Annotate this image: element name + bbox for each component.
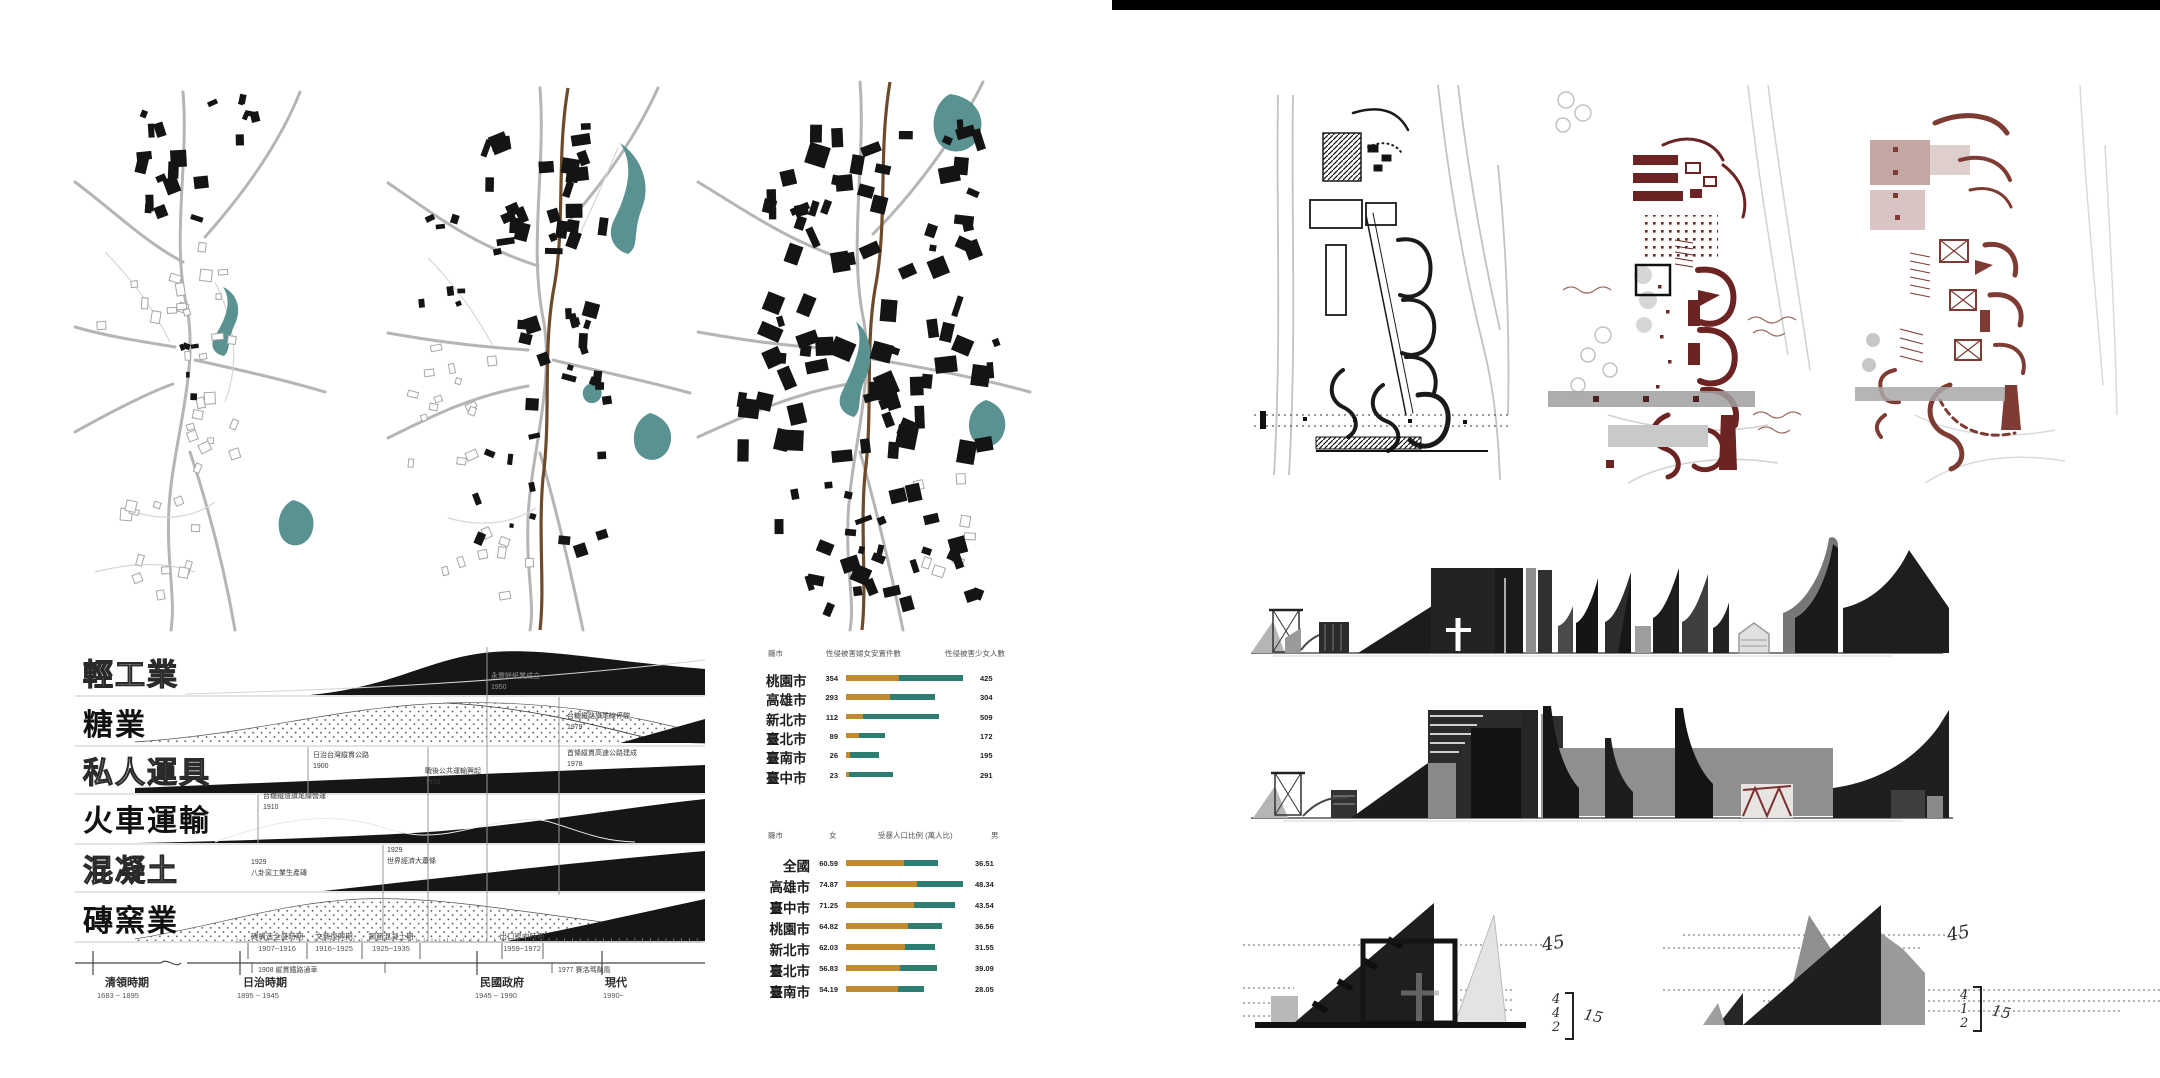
building-footprint — [136, 151, 152, 161]
planC-stairs — [1900, 253, 1930, 362]
timeline-annotation-1-line2: 1979 — [567, 724, 583, 731]
building-outline — [97, 321, 106, 329]
building-footprint — [876, 544, 884, 555]
building-outline — [960, 515, 971, 527]
building-outline — [198, 242, 206, 252]
building-footprint — [545, 248, 563, 254]
building-footprint — [784, 243, 804, 266]
building-footprint — [148, 123, 155, 137]
stacked-bar — [846, 694, 935, 700]
planA-context-roads — [1274, 85, 1509, 480]
building-footprint — [581, 123, 591, 130]
table-header-3: 男 — [991, 830, 999, 841]
table-header-2: 受暴人口比例 (萬人比) — [878, 830, 953, 841]
band-concrete-wedge — [323, 851, 705, 891]
planC-trees — [1862, 333, 1880, 372]
building-footprint — [822, 602, 835, 617]
building-footprint — [966, 187, 980, 198]
bar-segment-gold — [846, 694, 890, 700]
building-outline — [153, 501, 161, 509]
building-outline — [125, 500, 137, 513]
value-series-2: 39.09 — [975, 964, 994, 973]
building-outline — [183, 309, 191, 317]
elev1-chapel-box — [1431, 568, 1552, 653]
city-map-stage-1 — [75, 92, 325, 630]
building-outline — [525, 558, 533, 567]
building-footprint — [602, 395, 612, 404]
building-footprint — [939, 322, 955, 343]
elev1-shed-roofs — [1558, 568, 1729, 653]
building-outline — [229, 448, 241, 460]
building-outline — [169, 273, 182, 283]
building-footprint — [914, 406, 924, 429]
building-footprint — [870, 194, 889, 214]
planA-ink-lines — [1310, 109, 1448, 451]
building-footprint — [250, 111, 261, 123]
value-series-2: 291 — [980, 771, 993, 780]
axis-period-name-1: 日治時期 — [243, 975, 287, 989]
building-outline — [131, 281, 138, 288]
building-outline — [434, 395, 443, 403]
bar-segment-gold — [846, 923, 908, 929]
building-outline — [465, 449, 479, 461]
building-footprint — [779, 169, 797, 187]
building-footprint — [899, 595, 915, 612]
map2-buildings — [407, 123, 612, 600]
axis-period-range-1: 1895 ~ 1945 — [237, 991, 279, 1000]
building-footprint — [831, 449, 853, 463]
building-footprint — [777, 366, 798, 391]
top-black-bar — [1112, 0, 2160, 10]
building-footprint — [238, 94, 246, 105]
bar-segment-teal — [900, 965, 937, 971]
building-outline — [230, 419, 239, 430]
axis-event-1: 1977 賽洛瑪颱風 — [558, 965, 611, 974]
sketchR-annotations: 4541215 — [1944, 921, 2012, 1031]
axis-period-name-0: 清領時期 — [105, 975, 149, 989]
sketchR-dim-0: 4 — [1959, 988, 1968, 1003]
building-outline — [956, 474, 965, 485]
building-footprint — [883, 585, 901, 598]
axis-period-range-0: 1683 ~ 1895 — [97, 991, 139, 1000]
building-outline — [407, 390, 418, 398]
building-footprint — [831, 128, 843, 148]
building-footprint — [566, 204, 583, 218]
building-outline — [408, 459, 414, 468]
elev1-entry-ramp — [1301, 622, 1349, 653]
building-footprint — [921, 546, 932, 555]
building-footprint — [592, 370, 602, 386]
sketchL-dim-2: 2 — [1551, 1020, 1560, 1035]
building-footprint — [951, 295, 963, 317]
building-footprint — [929, 244, 937, 251]
elev1-tall-curves — [1783, 537, 1949, 653]
value-series-2: 195 — [980, 751, 993, 760]
building-outline — [175, 283, 185, 297]
building-footprint — [455, 300, 462, 307]
building-outline — [192, 410, 203, 420]
industry-timeline-chart: 輕工業糖業私人運具火車運輸混凝土磚窯業永豐餘紙業成立1950台糖鐵路旗尾線停駛1… — [75, 645, 705, 1015]
stacked-bar — [846, 881, 963, 887]
axis-period-range-3: 1990~ — [603, 991, 625, 1000]
city-map-stage-3 — [698, 82, 1030, 630]
building-footprint — [572, 166, 589, 181]
building-footprint — [975, 436, 994, 453]
value-series-1: 64.82 — [798, 922, 838, 931]
sketchL-light-triangle — [1455, 915, 1506, 1023]
building-footprint — [926, 319, 939, 339]
building-footprint — [598, 217, 609, 236]
building-outline — [200, 269, 213, 282]
axis-subperiod-range-3: 1959~1972 — [503, 944, 541, 953]
timeline-bands — [135, 651, 705, 941]
building-footprint — [582, 301, 601, 319]
sketchL-scale-note: 15 — [1582, 1005, 1604, 1027]
building-footprint — [810, 125, 822, 143]
building-footprint — [450, 214, 460, 225]
axis-subperiod-range-1: 1916~1925 — [315, 944, 353, 953]
value-series-2: 36.51 — [975, 859, 994, 868]
table-row: 臺中市71.2543.54 — [758, 897, 1030, 915]
value-series-2: 172 — [980, 732, 993, 741]
building-outline — [448, 363, 455, 373]
timeline-row-label-3: 火車運輸 — [83, 804, 211, 838]
elev2-ramp-wedge — [1351, 763, 1428, 818]
building-footprint — [808, 200, 819, 217]
building-outline — [487, 356, 497, 366]
building-outline — [211, 333, 223, 340]
building-footprint — [849, 154, 865, 175]
building-footprint — [881, 411, 895, 428]
building-footprint — [436, 224, 446, 230]
building-footprint — [781, 430, 804, 451]
table-row: 臺南市54.1928.05 — [758, 981, 1030, 999]
axis-subperiod-range-0: 1907~1916 — [258, 944, 296, 953]
building-footprint — [517, 320, 533, 330]
building-outline — [499, 536, 510, 546]
table-row: 桃園市354425 — [758, 670, 1030, 688]
building-outline — [216, 294, 221, 300]
building-footprint — [794, 203, 809, 217]
scaffold-tower-icon — [1253, 773, 1357, 818]
building-footprint — [895, 424, 919, 450]
axis-period-name-3: 現代 — [605, 975, 627, 989]
building-footprint — [558, 535, 570, 545]
elevation-study-1 — [1243, 518, 1955, 663]
bar-segment-gold — [846, 881, 917, 887]
building-footprint — [561, 373, 577, 383]
site-plan-sketch-ink — [1248, 85, 1520, 480]
building-footprint — [880, 299, 898, 322]
building-outline — [156, 590, 165, 600]
value-series-1: 89 — [798, 732, 838, 741]
table-row: 臺中市23291 — [758, 767, 1030, 785]
table-header-0: 縣市 — [768, 648, 783, 659]
value-series-1: 23 — [798, 771, 838, 780]
building-footprint — [804, 142, 831, 169]
map1-buildings — [97, 94, 261, 600]
building-footprint — [472, 492, 482, 505]
building-footprint — [186, 372, 190, 378]
scaffold-tower-icon — [1251, 610, 1303, 653]
building-footprint — [816, 539, 835, 556]
axis-period-name-2: 民國政府 — [480, 975, 524, 989]
building-footprint — [555, 220, 568, 239]
timeline-row-label-5: 磚窯業 — [83, 904, 179, 938]
building-footprint — [484, 449, 496, 459]
building-footprint — [529, 513, 537, 520]
sketchR-left-tail — [1703, 1003, 1725, 1025]
building-outline — [429, 403, 438, 411]
section-sketch-left: 4544215 — [1243, 853, 1663, 1033]
axis-subperiod-name-1: 文藝復興期 — [315, 931, 353, 941]
building-footprint — [573, 542, 589, 558]
building-outline — [186, 430, 198, 442]
bar-segment-gold — [846, 965, 900, 971]
building-footprint — [140, 110, 148, 119]
bar-segment-teal — [890, 694, 936, 700]
building-outline — [442, 566, 449, 575]
bar-segment-gold — [846, 860, 904, 866]
table-header-1: 女 — [829, 830, 837, 841]
building-footprint — [525, 398, 539, 411]
value-series-1: 62.03 — [798, 943, 838, 952]
building-footprint — [860, 438, 871, 453]
elev1-ramp-wedge — [1358, 606, 1432, 653]
building-footprint — [761, 346, 785, 369]
bar-segment-teal — [899, 675, 963, 681]
stacked-bar — [846, 752, 879, 758]
table-row: 臺南市26195 — [758, 747, 1030, 765]
building-footprint — [571, 133, 591, 147]
table-header-1: 性侵被害婦女安置件數 — [826, 648, 901, 659]
stat-table-victim-ratio: 縣市女受暴人口比例 (萬人比)男全國60.5936.51高雄市74.8748.3… — [758, 818, 1030, 1018]
elev2-truss — [1741, 784, 1793, 818]
building-outline — [497, 547, 506, 559]
building-footprint — [145, 203, 152, 213]
building-outline — [167, 307, 177, 313]
stacked-bar — [846, 860, 938, 866]
timeline-annotation-7-line1: 1929 — [387, 847, 403, 854]
bar-segment-gold — [846, 944, 905, 950]
building-footprint — [853, 586, 863, 596]
building-footprint — [488, 131, 511, 155]
stacked-bar — [846, 902, 955, 908]
bar-segment-teal — [859, 733, 885, 739]
timeline-annotation-0-line2: 1950 — [491, 684, 507, 691]
building-footprint — [951, 334, 974, 356]
building-outline — [478, 549, 488, 559]
building-footprint — [496, 237, 515, 246]
timeline-annotation-2-line2: 1900 — [313, 763, 329, 770]
building-footprint — [509, 523, 514, 528]
building-footprint — [845, 529, 857, 537]
building-footprint — [595, 529, 608, 541]
planB-trees — [1556, 92, 1657, 392]
planA-rail-dots — [1254, 411, 1512, 451]
sketchL-angle-note: 45 — [1539, 931, 1566, 956]
building-footprint — [153, 121, 167, 137]
value-series-1: 56.83 — [798, 964, 838, 973]
stacked-bar — [846, 733, 885, 739]
building-footprint — [953, 157, 969, 176]
building-outline — [921, 557, 931, 569]
timeline-annotation-6-line2: 八卦窯工業生產磚 — [251, 868, 307, 877]
building-footprint — [820, 199, 832, 215]
building-outline — [186, 423, 194, 430]
bar-segment-gold — [846, 714, 863, 720]
value-series-1: 26 — [798, 751, 838, 760]
building-footprint — [153, 204, 168, 219]
sketchR-dim-1: 1 — [1960, 1002, 1968, 1017]
table-row: 新北市112509 — [758, 709, 1030, 727]
bar-segment-gold — [846, 675, 899, 681]
building-outline — [161, 567, 170, 574]
sketchL-dim-1: 4 — [1551, 1006, 1560, 1021]
bar-segment-teal — [905, 944, 935, 950]
building-footprint — [859, 241, 882, 260]
building-footprint — [737, 439, 749, 461]
sketchR-scale-note: 15 — [1990, 1001, 2012, 1023]
building-footprint — [207, 99, 218, 108]
axis-event-0: 1908 縱貫鐵路通車 — [258, 965, 318, 974]
building-footprint — [794, 215, 807, 231]
building-outline — [218, 269, 227, 275]
value-series-2: 304 — [980, 693, 993, 702]
bar-segment-teal — [898, 986, 925, 992]
building-footprint — [800, 345, 812, 357]
band-rail-transport — [135, 799, 705, 843]
stacked-bar — [846, 675, 963, 681]
axis-period-range-2: 1945 ~ 1990 — [475, 991, 517, 1000]
timeline-annotation-2-line1: 日治台灣縱貫公路 — [313, 750, 369, 759]
planC-texture-blocks — [1870, 140, 1970, 230]
building-footprint — [518, 332, 532, 345]
building-footprint — [168, 161, 179, 178]
table-header-0: 縣市 — [768, 830, 783, 841]
table-row: 新北市62.0331.55 — [758, 939, 1030, 957]
value-series-2: 48.34 — [975, 880, 994, 889]
timeline-row-label-2: 私人運具 — [83, 757, 211, 790]
bar-segment-teal — [914, 902, 955, 908]
timeline-annotation-3-line1: 戰後公共運輸興起 — [425, 766, 481, 775]
building-footprint — [805, 358, 829, 374]
timeline-row-label-1: 糖業 — [83, 709, 147, 742]
bar-segment-teal — [904, 860, 939, 866]
table-row: 全國60.5936.51 — [758, 855, 1030, 873]
value-series-1: 74.87 — [798, 880, 838, 889]
sketchR-angle-note: 45 — [1944, 921, 1971, 946]
timeline-annotation-4-line2: 1978 — [567, 761, 583, 768]
city-map-stage-2 — [388, 88, 690, 630]
building-outline — [932, 565, 946, 578]
table-row: 臺北市56.8339.09 — [758, 960, 1030, 978]
sketchR-gray-right — [1881, 933, 1925, 1025]
building-footprint — [762, 291, 786, 315]
building-outline — [199, 353, 207, 360]
building-footprint — [899, 131, 913, 139]
sketchL-dim-0: 4 — [1551, 992, 1560, 1007]
building-footprint — [875, 163, 892, 175]
value-series-1: 293 — [798, 693, 838, 702]
sketchR-bracket — [1973, 987, 1981, 1031]
building-footprint — [910, 377, 924, 396]
building-outline — [457, 556, 466, 567]
value-series-2: 31.55 — [975, 943, 994, 952]
building-footprint — [992, 338, 1001, 347]
building-footprint — [952, 553, 965, 569]
building-footprint — [924, 223, 938, 238]
building-outline — [177, 303, 187, 310]
stacked-bar — [846, 986, 924, 992]
building-footprint — [926, 255, 950, 279]
building-footprint — [538, 161, 554, 173]
timeline-annotation-5-line2: 1910 — [263, 804, 279, 811]
timeline-annotation-6-line1: 1929 — [251, 859, 267, 866]
value-series-1: 71.25 — [798, 901, 838, 910]
building-footprint — [190, 393, 197, 400]
stacked-bar — [846, 714, 939, 720]
building-outline — [185, 351, 191, 360]
building-footprint — [193, 175, 209, 189]
bar-segment-teal — [917, 881, 963, 887]
bar-segment-teal — [908, 923, 943, 929]
value-series-2: 43.54 — [975, 901, 994, 910]
axis-subperiod-range-2: 1925~1935 — [372, 944, 410, 953]
timeline-row-label-0: 輕工業 — [83, 659, 179, 692]
building-footprint — [796, 293, 817, 317]
building-footprint — [774, 519, 783, 534]
stacked-bar — [846, 944, 935, 950]
table-row: 高雄市293304 — [758, 689, 1030, 707]
building-footprint — [824, 482, 832, 489]
building-outline — [964, 533, 975, 540]
stacked-bar — [846, 772, 893, 778]
axis-subperiod-name-0: 磚構造全盛時期 — [251, 931, 304, 941]
building-outline — [151, 311, 162, 324]
sketchL-bracket — [1565, 993, 1573, 1039]
building-footprint — [191, 344, 199, 349]
building-outline — [204, 392, 215, 404]
timeline-annotation-7-line2: 世界經濟大蕭條 — [387, 856, 436, 865]
bar-segment-teal — [850, 752, 879, 758]
building-outline — [424, 369, 434, 377]
building-outline — [455, 378, 462, 385]
bar-segment-teal — [863, 714, 939, 720]
band-private-transport-wedge — [135, 765, 705, 793]
elev1-house-outline — [1739, 623, 1769, 653]
building-footprint — [565, 230, 582, 250]
map1-roads — [75, 92, 325, 630]
value-series-2: 425 — [980, 674, 993, 683]
bar-segment-teal — [849, 772, 893, 778]
table-row: 臺北市89172 — [758, 728, 1030, 746]
value-series-2: 36.56 — [975, 922, 994, 931]
sketchR-dim-2: 2 — [1959, 1016, 1968, 1031]
timeline-annotation-3-line2: 1939 — [425, 779, 441, 786]
building-outline — [420, 414, 427, 421]
building-outline — [499, 591, 511, 600]
elevation-study-2 — [1243, 668, 1961, 833]
elev2-main-box — [1428, 710, 1563, 818]
building-footprint — [190, 214, 203, 223]
site-plan-sketch-maroon-light — [1855, 85, 2155, 483]
table-header-2: 性侵被害少女人數 — [945, 648, 1005, 659]
building-outline — [457, 457, 467, 465]
building-footprint — [787, 402, 808, 425]
building-footprint — [956, 439, 977, 465]
building-footprint — [597, 451, 606, 459]
